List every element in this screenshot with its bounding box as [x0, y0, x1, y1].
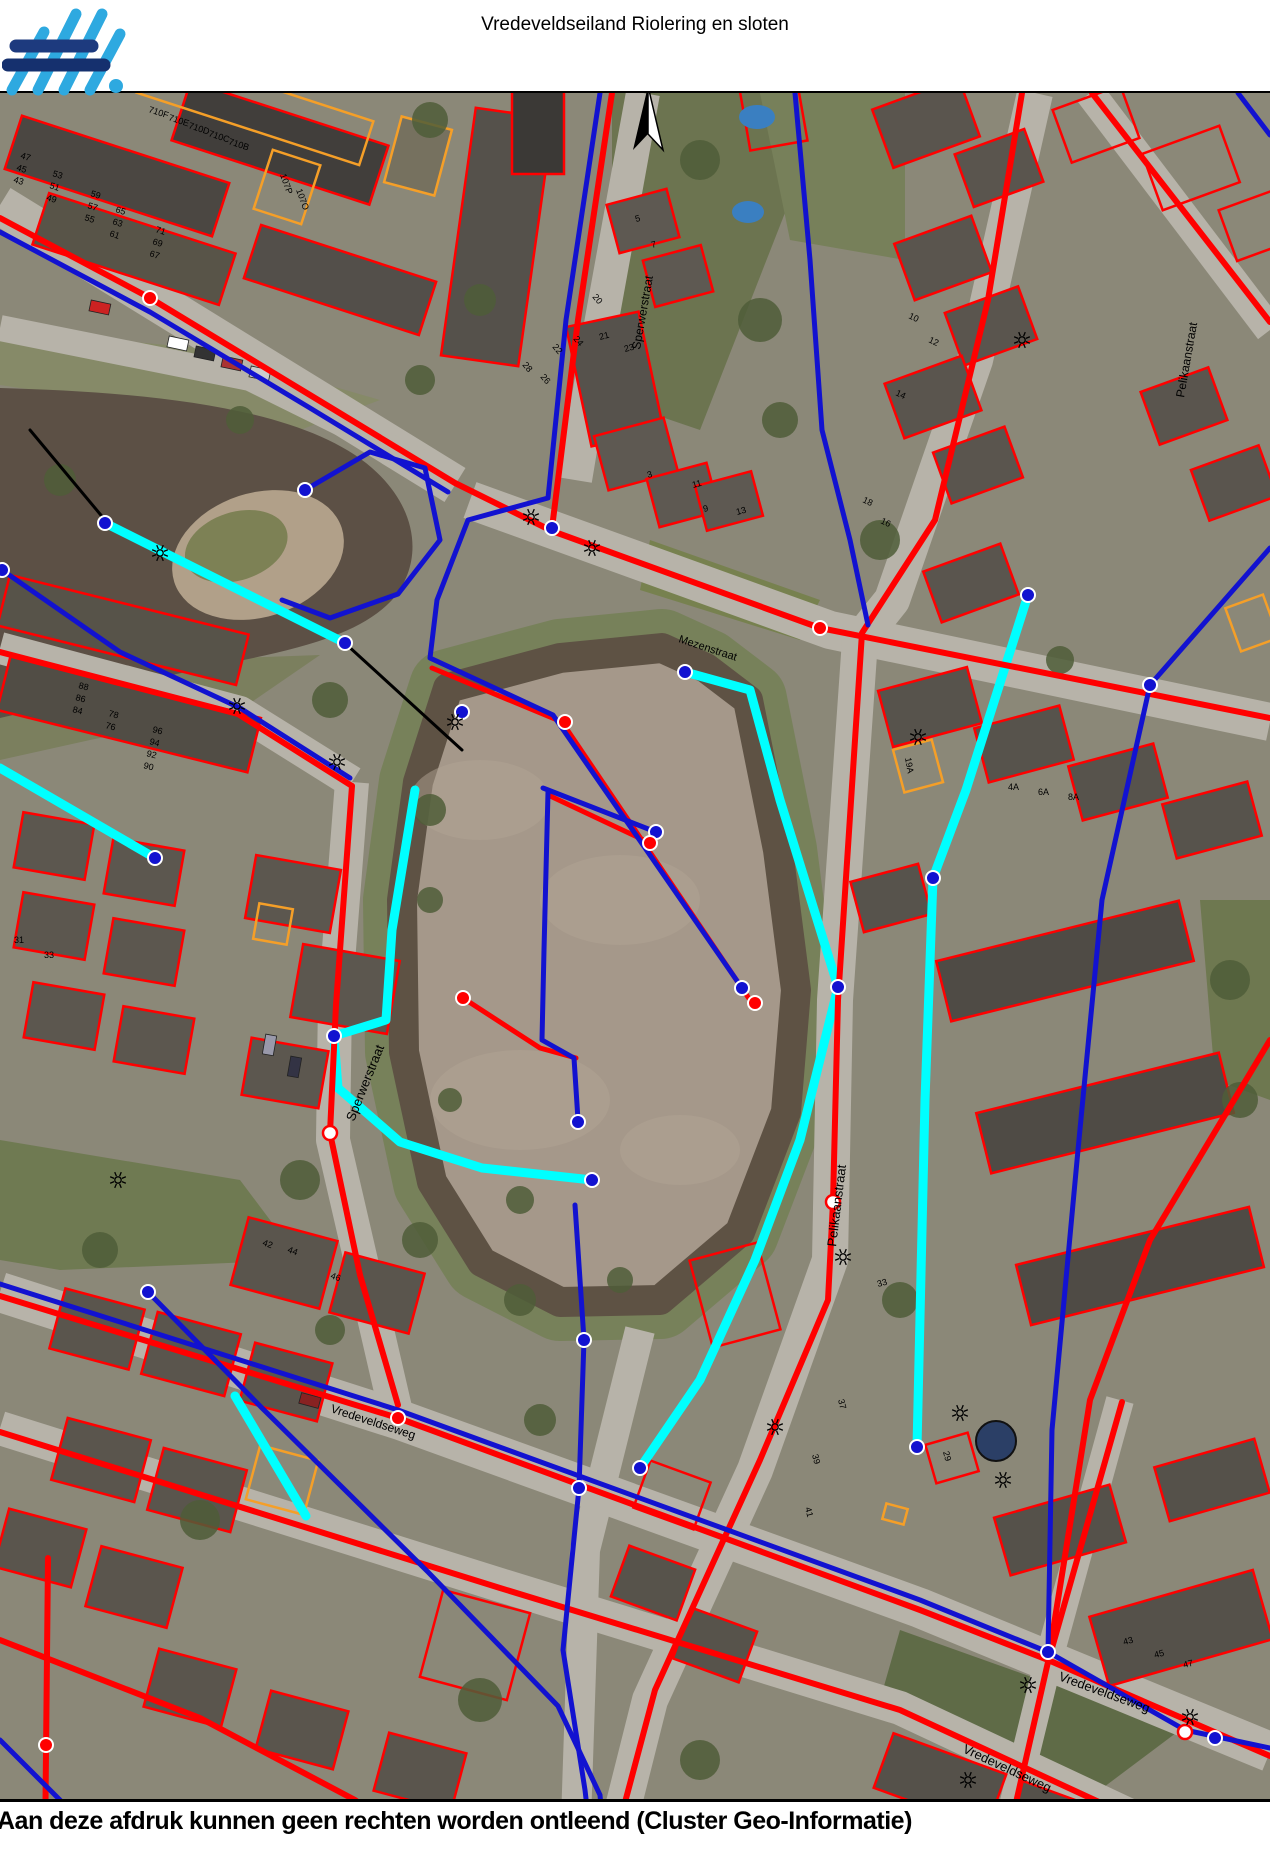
house-number: 4A — [1008, 782, 1019, 792]
map-print-page: 474543535149595755656361716967710F710E71… — [0, 0, 1270, 1851]
tree — [762, 402, 798, 438]
tree — [280, 1160, 320, 1200]
island-canal — [402, 648, 796, 1302]
node-blue — [678, 665, 692, 679]
tree — [312, 682, 348, 718]
node-blue — [141, 1285, 155, 1299]
print-footer: Aan deze afdruk kunnen geen rechten word… — [0, 1799, 1270, 1851]
tree — [680, 140, 720, 180]
tree — [882, 1282, 918, 1318]
node-red — [558, 715, 572, 729]
node-blue — [831, 980, 845, 994]
tree — [402, 1222, 438, 1258]
node-blue — [577, 1333, 591, 1347]
tree — [1046, 646, 1074, 674]
tree — [506, 1186, 534, 1214]
house-number: 33 — [44, 950, 54, 960]
tree — [607, 1267, 633, 1293]
node-blue — [735, 981, 749, 995]
node-blue — [327, 1029, 341, 1043]
tree — [680, 1740, 720, 1780]
tree — [417, 887, 443, 913]
tree — [414, 794, 446, 826]
print-header: Vredeveldseiland Riolering en sloten — [0, 0, 1270, 93]
node-blue — [0, 563, 9, 577]
node-blue — [545, 521, 559, 535]
building-outline — [104, 918, 185, 986]
building-outline — [245, 855, 341, 933]
node-blue — [572, 1481, 586, 1495]
node-open — [1178, 1725, 1192, 1739]
tree — [82, 1232, 118, 1268]
tree — [405, 365, 435, 395]
building-outline — [14, 812, 95, 880]
tree — [180, 1500, 220, 1540]
tree — [412, 102, 448, 138]
page-title: Vredeveldseiland Riolering en sloten — [0, 14, 1270, 36]
node-blue — [298, 483, 312, 497]
node-blue — [1041, 1645, 1055, 1659]
house-number: 6A — [1038, 787, 1049, 797]
tree — [226, 406, 254, 434]
node-blue — [585, 1173, 599, 1187]
node-red — [39, 1738, 53, 1752]
tree — [1210, 960, 1250, 1000]
house-number: 8A — [1068, 792, 1079, 802]
aerial-map: 474543535149595755656361716967710F710E71… — [0, 0, 1270, 1851]
node-blue — [910, 1440, 924, 1454]
node-blue — [98, 516, 112, 530]
island-soil-patch — [540, 855, 700, 945]
tree — [738, 298, 782, 342]
tree — [458, 1678, 502, 1722]
node-blue — [1143, 678, 1157, 692]
tree — [860, 520, 900, 560]
building-outline — [242, 1038, 329, 1109]
tree — [464, 284, 496, 316]
node-red — [643, 836, 657, 850]
island-soil-patch — [620, 1115, 740, 1185]
disclaimer-text: Aan deze afdruk kunnen geen rechten word… — [0, 1807, 912, 1836]
tree — [315, 1315, 345, 1345]
node-blue — [633, 1461, 647, 1475]
waterboard-logo-icon — [2, 2, 134, 98]
node-red — [813, 621, 827, 635]
node-blue — [1021, 588, 1035, 602]
node-red — [456, 991, 470, 1005]
building-outline — [114, 1006, 195, 1074]
node-blue — [571, 1115, 585, 1129]
house-number: 31 — [14, 935, 24, 945]
node-blue — [1208, 1731, 1222, 1745]
trampoline — [976, 1421, 1016, 1461]
building-outline — [24, 982, 105, 1050]
node-blue — [926, 871, 940, 885]
building-outline — [512, 82, 564, 174]
swimming-pool — [739, 105, 775, 129]
tree — [504, 1284, 536, 1316]
node-blue — [338, 636, 352, 650]
tree — [524, 1404, 556, 1436]
node-red — [748, 996, 762, 1010]
node-open — [323, 1126, 337, 1140]
node-red — [143, 291, 157, 305]
tree — [438, 1088, 462, 1112]
node-blue — [148, 851, 162, 865]
swimming-pool — [732, 201, 764, 223]
